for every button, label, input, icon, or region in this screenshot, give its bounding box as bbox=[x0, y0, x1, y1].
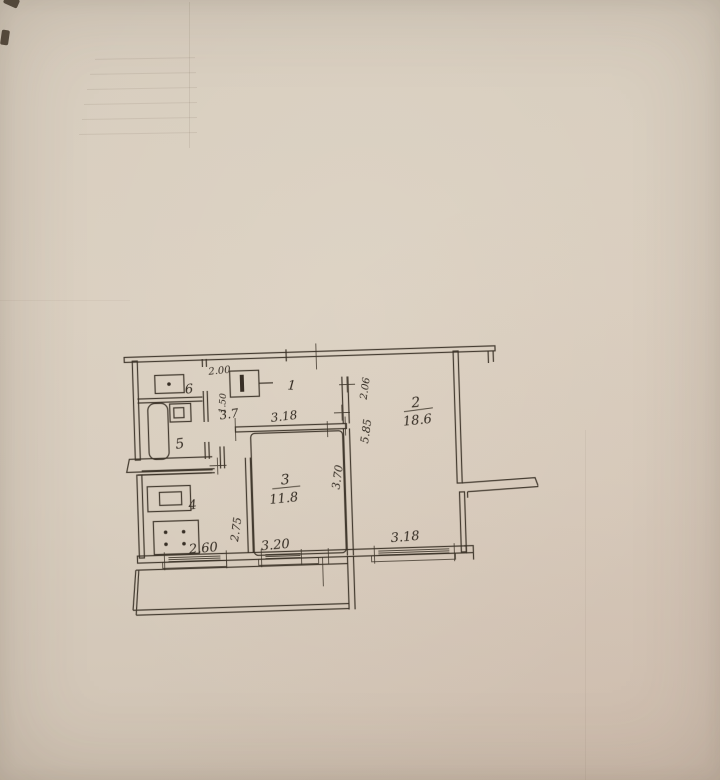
bedroom-inner-outline bbox=[251, 431, 347, 556]
hall-living-wall bbox=[342, 376, 349, 423]
outer-walls bbox=[123, 342, 541, 571]
dim-hall-depth: 2.06 bbox=[359, 376, 373, 401]
paper-crease bbox=[84, 102, 197, 105]
bath-sink-basin bbox=[174, 408, 184, 418]
dim-closet-width: 2.00 bbox=[207, 365, 232, 378]
stove-burner bbox=[182, 542, 186, 546]
paper-crease bbox=[95, 57, 195, 60]
axis-tick-top bbox=[316, 343, 317, 369]
dim-kitchen-width: 2.60 bbox=[187, 540, 218, 557]
room-label-kitchen: 4 bbox=[187, 498, 198, 514]
room-label-bedroom: 3 bbox=[280, 472, 291, 489]
room-label-hall: 1 bbox=[287, 378, 296, 394]
bath-sink bbox=[170, 403, 192, 422]
closet-outline bbox=[230, 370, 260, 397]
toilet-fixture-dot bbox=[167, 382, 171, 386]
dim-kitchen-depth: 2.75 bbox=[228, 516, 245, 543]
bedroom-living-wall bbox=[343, 428, 353, 555]
right-side-ledge bbox=[462, 478, 539, 498]
kitchen-sink-basin bbox=[159, 492, 181, 506]
paper-crease bbox=[79, 132, 197, 135]
ink-smudge bbox=[0, 30, 10, 46]
toilet-bath-divider bbox=[137, 397, 202, 403]
room-area-bedroom: 11.8 bbox=[269, 490, 299, 508]
stove-burner bbox=[182, 530, 186, 534]
top-right-stub bbox=[488, 351, 493, 363]
corridor-area: 3.7 bbox=[219, 406, 240, 423]
dim-living-width: 3.18 bbox=[390, 529, 420, 546]
dim-bedroom-depth: 3.70 bbox=[329, 464, 345, 490]
room-label-living: 2 bbox=[410, 395, 422, 412]
paper-crease bbox=[189, 2, 190, 148]
balcony-right-wall bbox=[347, 556, 355, 609]
room-label-toilet: 6 bbox=[184, 382, 194, 398]
labels: 6 2.00 1.50 3.7 1 3.18 2.06 5.85 3.70 2 … bbox=[172, 358, 437, 558]
balcony-slab bbox=[132, 564, 349, 616]
left-wall-upper bbox=[132, 361, 140, 460]
left-wall-lower bbox=[137, 475, 145, 558]
balcony bbox=[132, 564, 349, 616]
axis-tick-bottom bbox=[322, 557, 323, 586]
kitchen-sink bbox=[147, 485, 191, 511]
room-area-living: 18.6 bbox=[402, 412, 432, 430]
floor-plan-svg: 6 2.00 1.50 3.7 1 3.18 2.06 5.85 3.70 2 … bbox=[122, 337, 542, 620]
dim-bedroom-width: 3.20 bbox=[260, 537, 290, 554]
top-wall bbox=[124, 346, 495, 363]
paper-crease bbox=[585, 430, 586, 780]
stove-burner bbox=[164, 530, 168, 534]
paper-crease bbox=[0, 300, 130, 301]
cross-tick bbox=[334, 404, 350, 420]
dim-living-depth: 5.85 bbox=[358, 418, 374, 444]
paper-crease bbox=[90, 72, 196, 75]
paper-crease bbox=[82, 117, 197, 120]
bathtub bbox=[148, 403, 170, 460]
photographed-paper-sheet: 6 2.00 1.50 3.7 1 3.18 2.06 5.85 3.70 2 … bbox=[0, 0, 720, 780]
hall-closet bbox=[230, 370, 274, 397]
right-wall-upper bbox=[453, 351, 462, 483]
floor-plan: 6 2.00 1.50 3.7 1 3.18 2.06 5.85 3.70 2 … bbox=[122, 337, 542, 620]
closet-symbol bbox=[240, 375, 245, 392]
dim-hall-width: 3.18 bbox=[270, 408, 299, 425]
ink-smudge bbox=[3, 0, 20, 9]
paper-crease bbox=[87, 87, 197, 90]
room-label-bath: 5 bbox=[174, 436, 185, 453]
stove-burner bbox=[164, 542, 168, 546]
right-wall-lower bbox=[460, 492, 467, 552]
